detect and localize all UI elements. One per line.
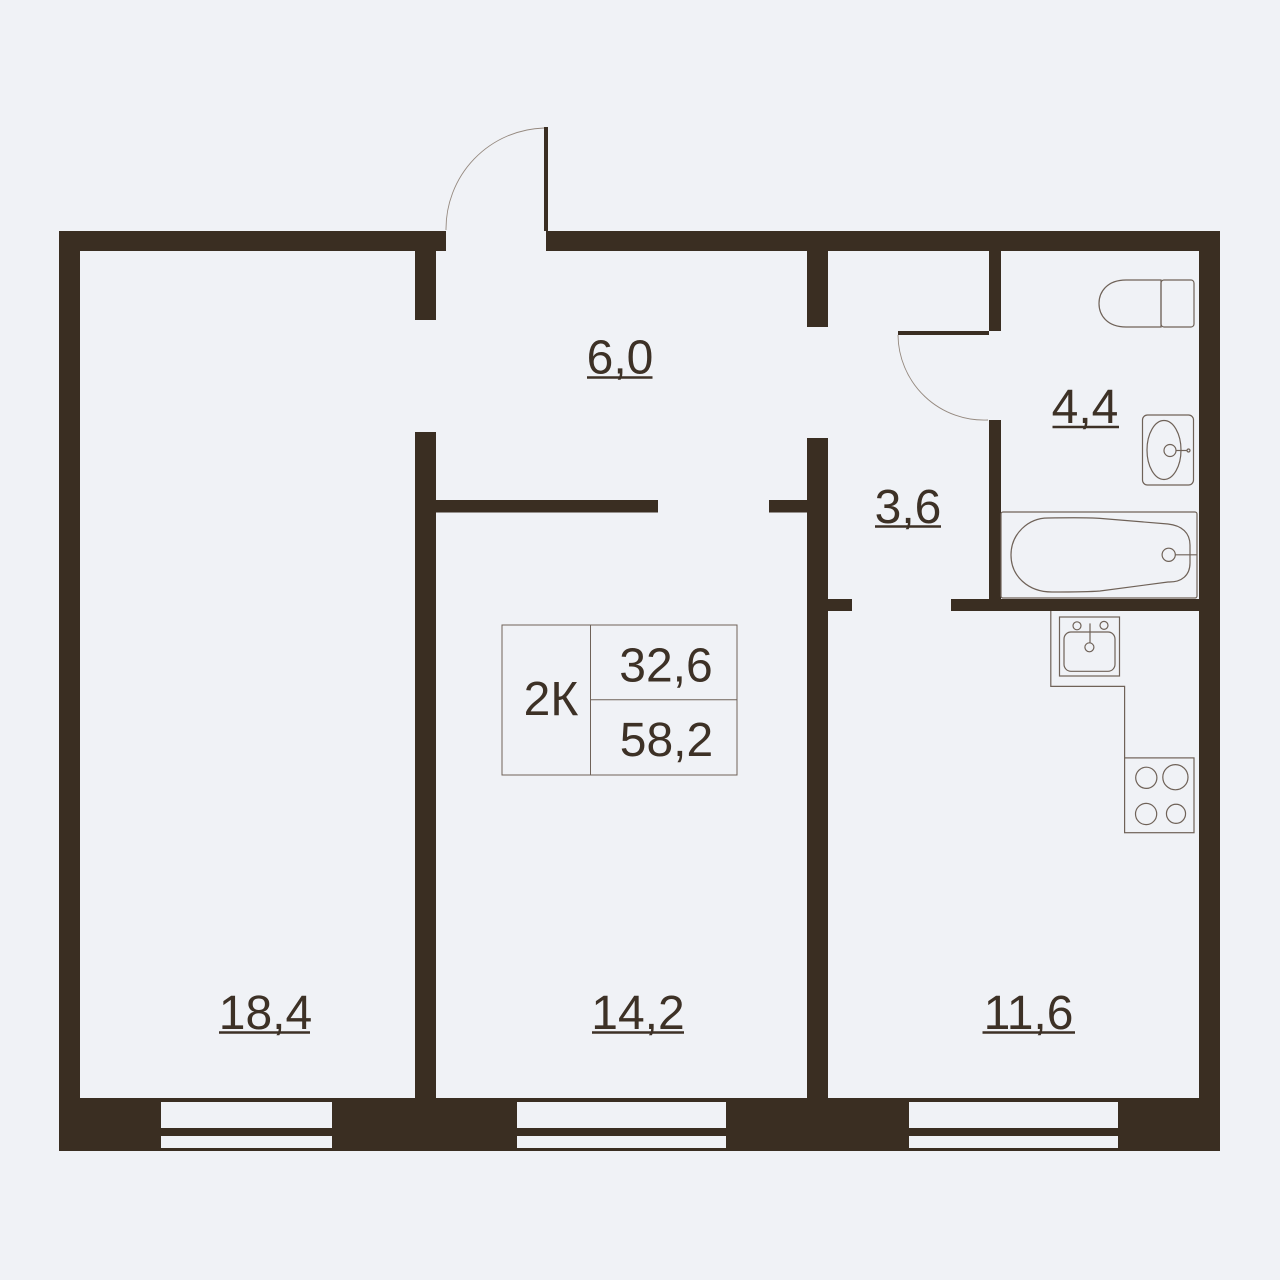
svg-text:32,6: 32,6 (619, 640, 712, 693)
svg-text:2К: 2К (524, 673, 579, 726)
svg-text:58,2: 58,2 (620, 714, 713, 767)
